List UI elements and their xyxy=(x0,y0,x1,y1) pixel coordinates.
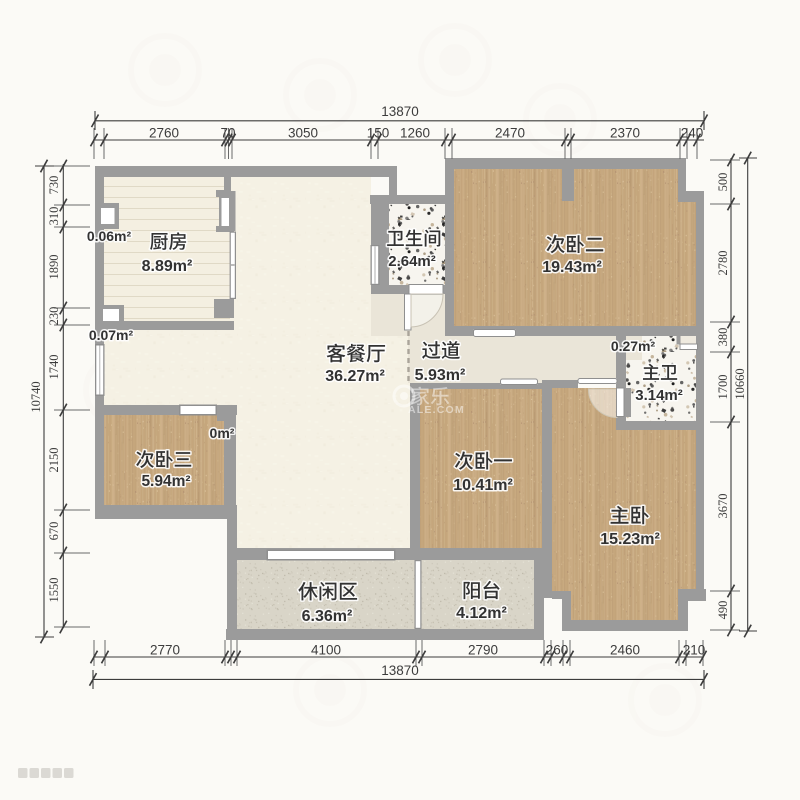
svg-text:5.93m²: 5.93m² xyxy=(415,367,466,384)
svg-text:380: 380 xyxy=(716,328,730,347)
svg-text:1260: 1260 xyxy=(400,126,430,141)
svg-text:5.94m²: 5.94m² xyxy=(141,473,190,490)
svg-text:ALE.COM: ALE.COM xyxy=(408,404,465,416)
svg-text:310: 310 xyxy=(47,207,61,226)
svg-text:3.14m²: 3.14m² xyxy=(635,387,683,404)
svg-text:2780: 2780 xyxy=(716,251,730,276)
svg-text:210: 210 xyxy=(683,643,706,658)
svg-text:230: 230 xyxy=(47,307,61,326)
svg-text:10740: 10740 xyxy=(29,381,43,412)
svg-text:0m²: 0m² xyxy=(210,425,235,441)
svg-text:70: 70 xyxy=(220,126,235,141)
svg-text:15.23m²: 15.23m² xyxy=(600,531,660,548)
svg-text:10.41m²: 10.41m² xyxy=(453,477,513,494)
svg-text:240: 240 xyxy=(681,126,704,141)
svg-text:150: 150 xyxy=(367,126,390,141)
svg-text:2.64m²: 2.64m² xyxy=(388,253,436,270)
svg-text:2470: 2470 xyxy=(495,126,525,141)
svg-text:2460: 2460 xyxy=(610,643,640,658)
svg-text:490: 490 xyxy=(716,601,730,620)
svg-text:4100: 4100 xyxy=(311,643,341,658)
svg-text:1550: 1550 xyxy=(47,578,61,603)
svg-text:10660: 10660 xyxy=(733,368,747,399)
svg-text:6.36m²: 6.36m² xyxy=(302,608,353,625)
svg-text:0.06m²: 0.06m² xyxy=(87,228,132,244)
svg-text:2790: 2790 xyxy=(468,643,498,658)
svg-text:730: 730 xyxy=(47,176,61,195)
svg-text:0.07m²: 0.07m² xyxy=(89,327,134,343)
svg-text:2770: 2770 xyxy=(150,643,180,658)
svg-text:2150: 2150 xyxy=(47,448,61,473)
svg-text:36.27m²: 36.27m² xyxy=(325,368,385,385)
svg-text:0.27m²: 0.27m² xyxy=(611,338,656,354)
svg-text:3670: 3670 xyxy=(716,494,730,519)
svg-text:1890: 1890 xyxy=(47,255,61,280)
svg-text:8.89m²: 8.89m² xyxy=(142,258,193,275)
svg-text:1740: 1740 xyxy=(47,355,61,380)
svg-text:19.43m²: 19.43m² xyxy=(542,259,602,276)
svg-text:2760: 2760 xyxy=(149,126,179,141)
svg-text:13870: 13870 xyxy=(381,663,419,678)
svg-text:1700: 1700 xyxy=(716,375,730,400)
svg-text:670: 670 xyxy=(47,522,61,541)
svg-text:260: 260 xyxy=(546,643,569,658)
svg-text:4.12m²: 4.12m² xyxy=(456,605,507,622)
svg-text:2370: 2370 xyxy=(610,126,640,141)
svg-text:13870: 13870 xyxy=(381,104,419,119)
svg-text:500: 500 xyxy=(716,173,730,192)
svg-text:3050: 3050 xyxy=(288,126,318,141)
